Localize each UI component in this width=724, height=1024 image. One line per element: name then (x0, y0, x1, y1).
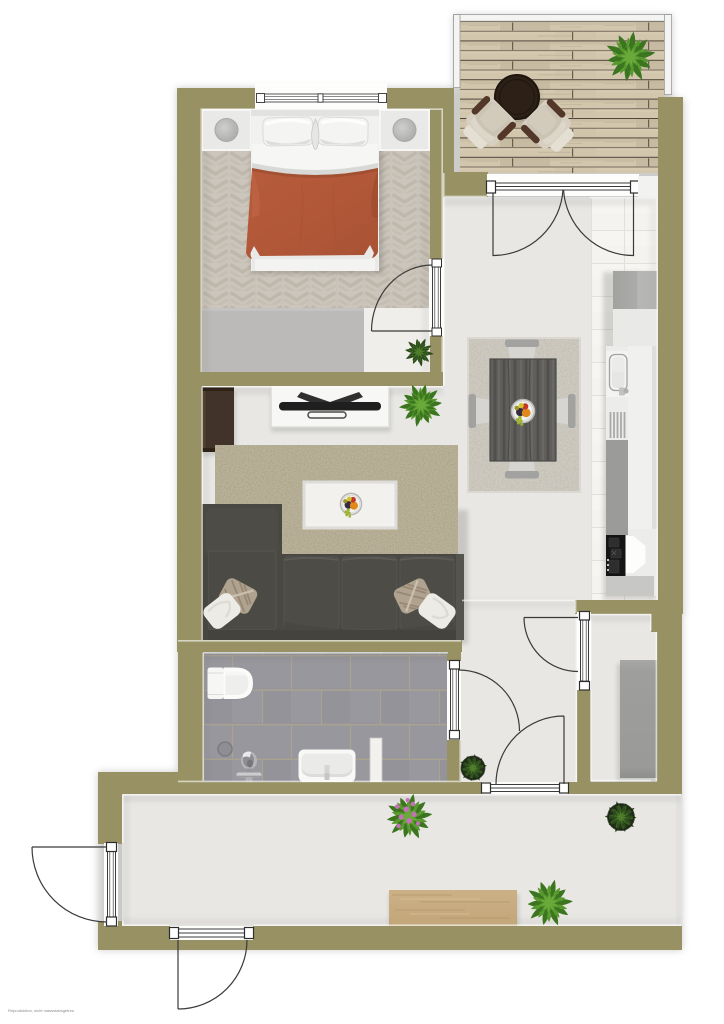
svg-text:Reproduktion, nicht massstabsg: Reproduktion, nicht massstabsgetreu (8, 1008, 74, 1013)
